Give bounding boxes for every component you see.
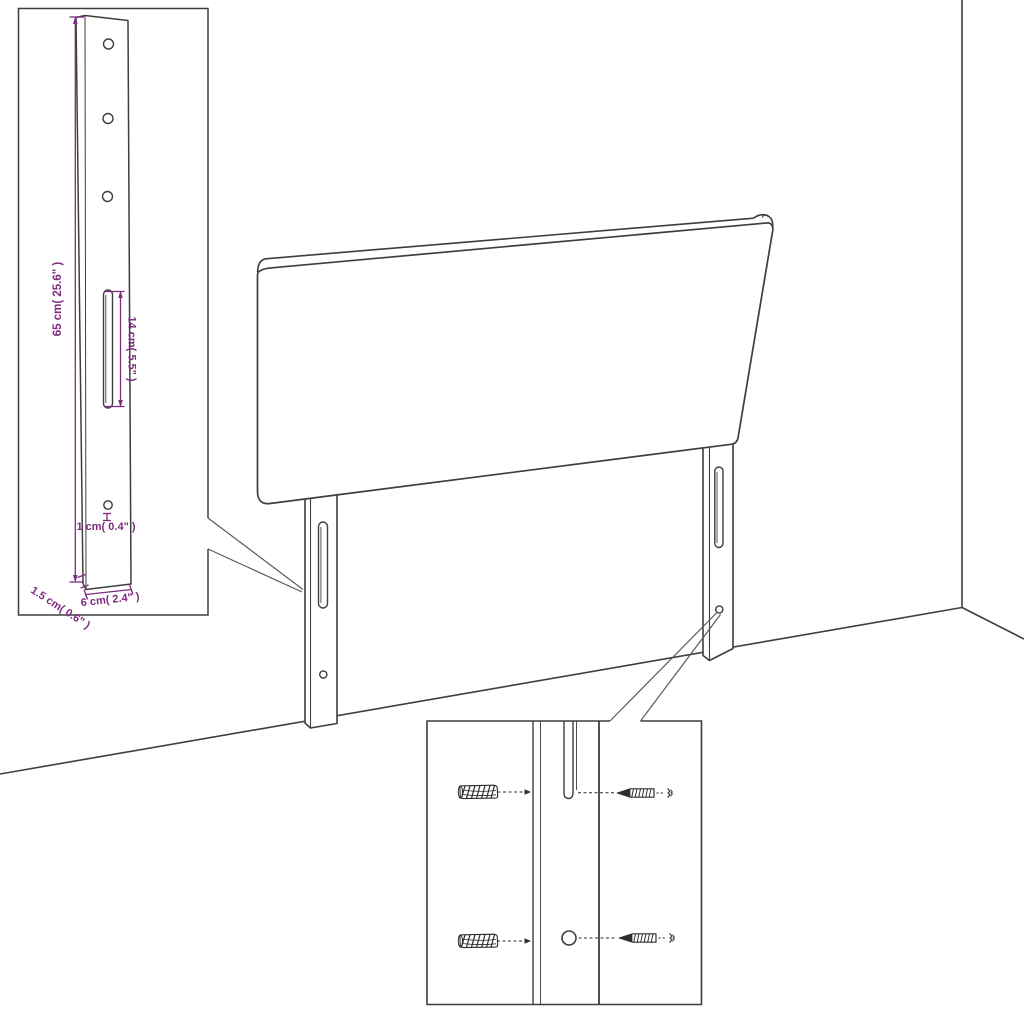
dimension-label-leg-height: 65 cm( 25.6" ) (52, 262, 64, 337)
leg-detail-callout-lines (208, 518, 303, 592)
diagram-stage: 65 cm( 25.6" ) 14 cm( 5.5" ) 1 cm( 0.4" … (0, 0, 1024, 1024)
leg-detail-drawing (76, 16, 131, 590)
right-leg-slot (715, 467, 723, 548)
headboard-panel (258, 215, 773, 504)
right-leg-hole (716, 606, 723, 613)
leg-detail-inset: 65 cm( 25.6" ) 14 cm( 5.5" ) 1 cm( 0.4" … (19, 9, 209, 632)
left-leg-hole (320, 671, 327, 678)
dimension-label-slot-length: 14 cm( 5.5" ) (126, 316, 138, 381)
left-leg-slot (319, 522, 328, 608)
floor-line-right (962, 608, 1024, 640)
mounting-detail-inset (427, 721, 702, 1005)
headboard-diagram: 65 cm( 25.6" ) 14 cm( 5.5" ) 1 cm( 0.4" … (0, 0, 1024, 1024)
dimension-label-hole-diameter: 1 cm( 0.4" ) (76, 521, 135, 533)
